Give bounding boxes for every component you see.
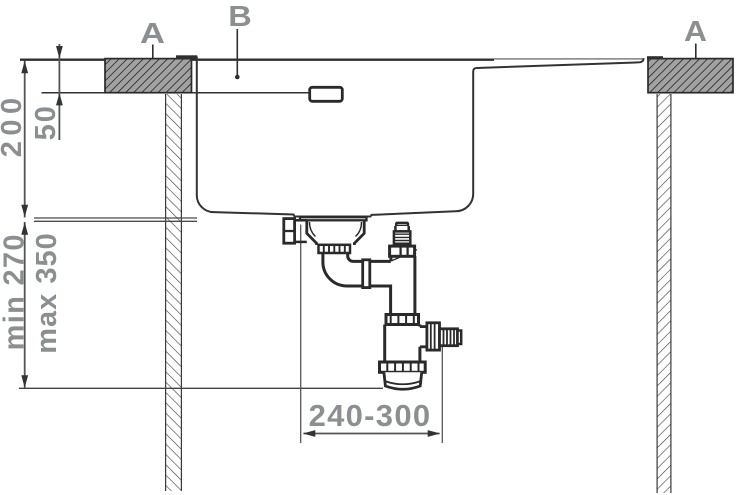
- svg-text:min 270: min 270: [0, 233, 31, 350]
- svg-text:max 350: max 350: [31, 232, 63, 354]
- svg-text:50: 50: [30, 104, 62, 140]
- svg-text:B: B: [228, 1, 252, 33]
- svg-text:A: A: [684, 16, 707, 48]
- svg-text:240-300: 240-300: [309, 398, 432, 433]
